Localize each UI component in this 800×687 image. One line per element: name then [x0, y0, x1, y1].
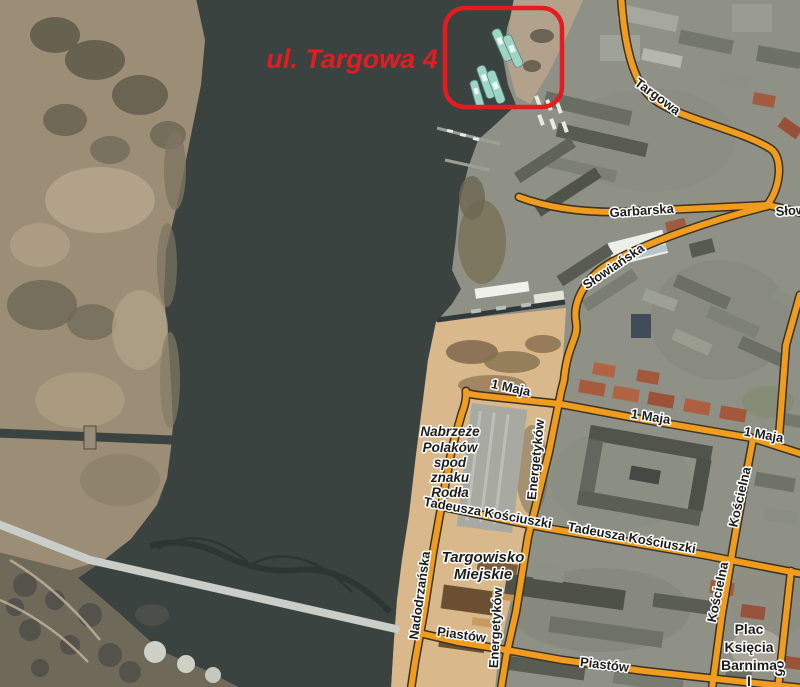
svg-text:Polaków: Polaków: [423, 440, 479, 455]
svg-text:Miejskie: Miejskie: [454, 566, 512, 583]
map-canvas[interactable]: Targowa Garbarska Słowiańska Słowiańska …: [0, 0, 800, 687]
svg-text:Rodła: Rodła: [431, 485, 469, 500]
annotation-label: ul. Targowa 4: [266, 44, 438, 74]
svg-text:Targowisko: Targowisko: [442, 549, 525, 566]
place-label-targowisko: Targowisko Miejskie: [442, 549, 525, 583]
svg-text:spod: spod: [434, 455, 467, 470]
svg-text:Księcia: Księcia: [724, 639, 773, 655]
map-image: Targowa Garbarska Słowiańska Słowiańska …: [0, 0, 800, 687]
svg-text:Nabrzeże: Nabrzeże: [420, 424, 480, 439]
svg-text:Barnima: Barnima: [721, 657, 777, 673]
svg-text:I: I: [747, 673, 751, 687]
svg-text:Plac: Plac: [735, 621, 764, 637]
svg-text:znaku: znaku: [430, 470, 470, 485]
